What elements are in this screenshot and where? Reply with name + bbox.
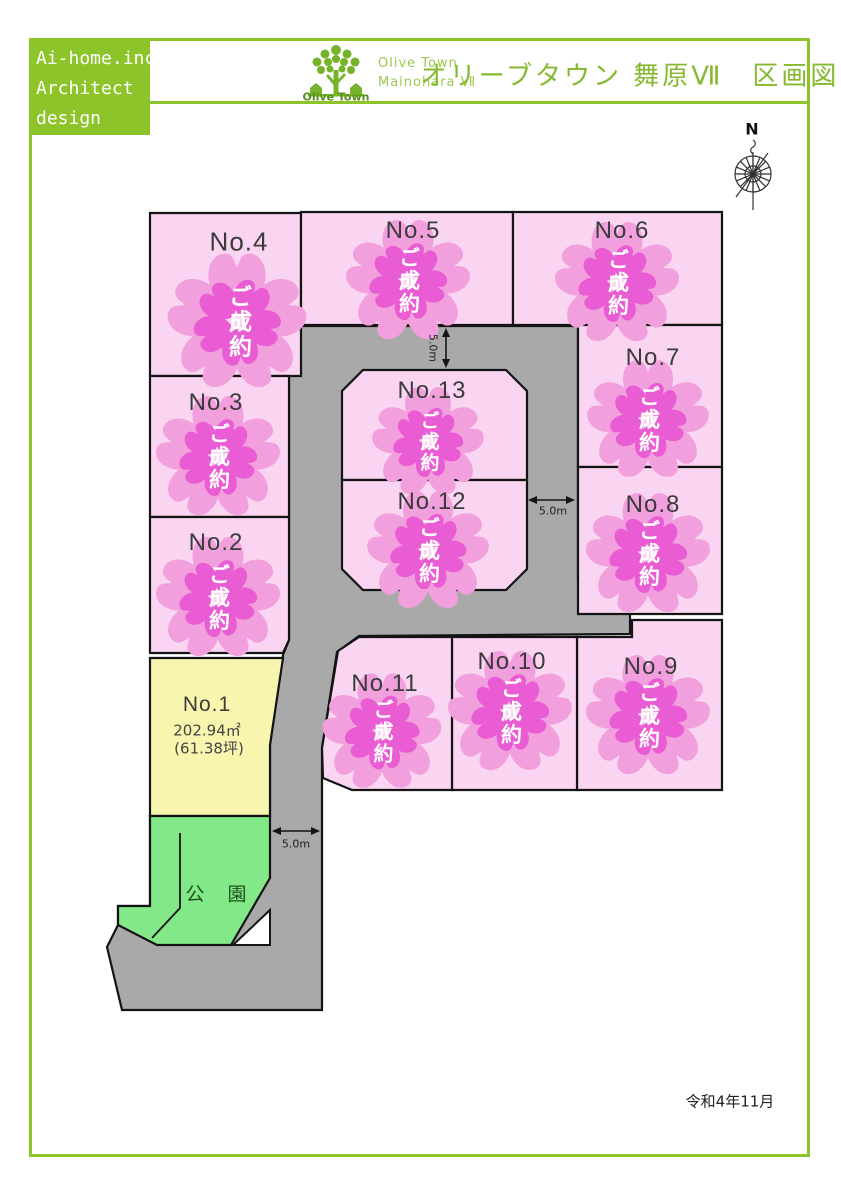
lot-no1-label: No.1 — [183, 693, 231, 717]
lot-no12-label: No.12 — [397, 488, 466, 516]
compass-icon — [735, 140, 771, 210]
sold-stamp-no6: ご成約 — [607, 249, 628, 318]
lot-no13-label: No.13 — [397, 377, 466, 405]
dimension-label-middle: 5.0m — [539, 505, 567, 518]
lot-no2-label: No.2 — [189, 529, 244, 557]
sold-stamp-no7: ご成約 — [638, 386, 659, 455]
lot-no8-label: No.8 — [626, 491, 681, 519]
lot-no3-label: No.3 — [189, 389, 244, 417]
sold-stamp-no11: ご成約 — [372, 699, 392, 765]
dimension-label-top: 5.0m — [427, 334, 440, 362]
dimension-label-lower: 5.0m — [282, 838, 310, 851]
sold-stamp-no12: ご成約 — [418, 517, 439, 586]
sold-stamp-no10: ご成約 — [500, 678, 521, 747]
park-label: 公 園 — [185, 880, 248, 907]
sold-stamp-no2: ご成約 — [208, 564, 229, 633]
compass-north-label: N — [745, 120, 758, 139]
sold-stamp-no13: ご成約 — [419, 411, 438, 474]
sold-stamp-no4: ご成約 — [226, 285, 249, 360]
sold-stamp-no8: ご成約 — [638, 520, 659, 589]
plot-map-svg — [0, 0, 841, 1191]
lot-no1-area-tsubo: (61.38坪) — [174, 738, 244, 759]
lot-no9-label: No.9 — [624, 653, 679, 681]
sold-stamp-no5: ご成約 — [398, 247, 419, 316]
sold-stamp-no9: ご成約 — [638, 682, 659, 751]
sold-stamp-no3: ご成約 — [208, 423, 229, 492]
lot-no6-label: No.6 — [595, 217, 650, 245]
lot-no7-label: No.7 — [626, 344, 681, 372]
lot-no10-label: No.10 — [477, 648, 546, 676]
plot-map-page: Ai-home.inc Architect design — [0, 0, 841, 1191]
lot-no11-label: No.11 — [351, 670, 418, 698]
lot-no5-label: No.5 — [386, 217, 441, 245]
lot-no4-label: No.4 — [210, 227, 269, 258]
date-label: 令和4年11月 — [686, 1091, 775, 1112]
